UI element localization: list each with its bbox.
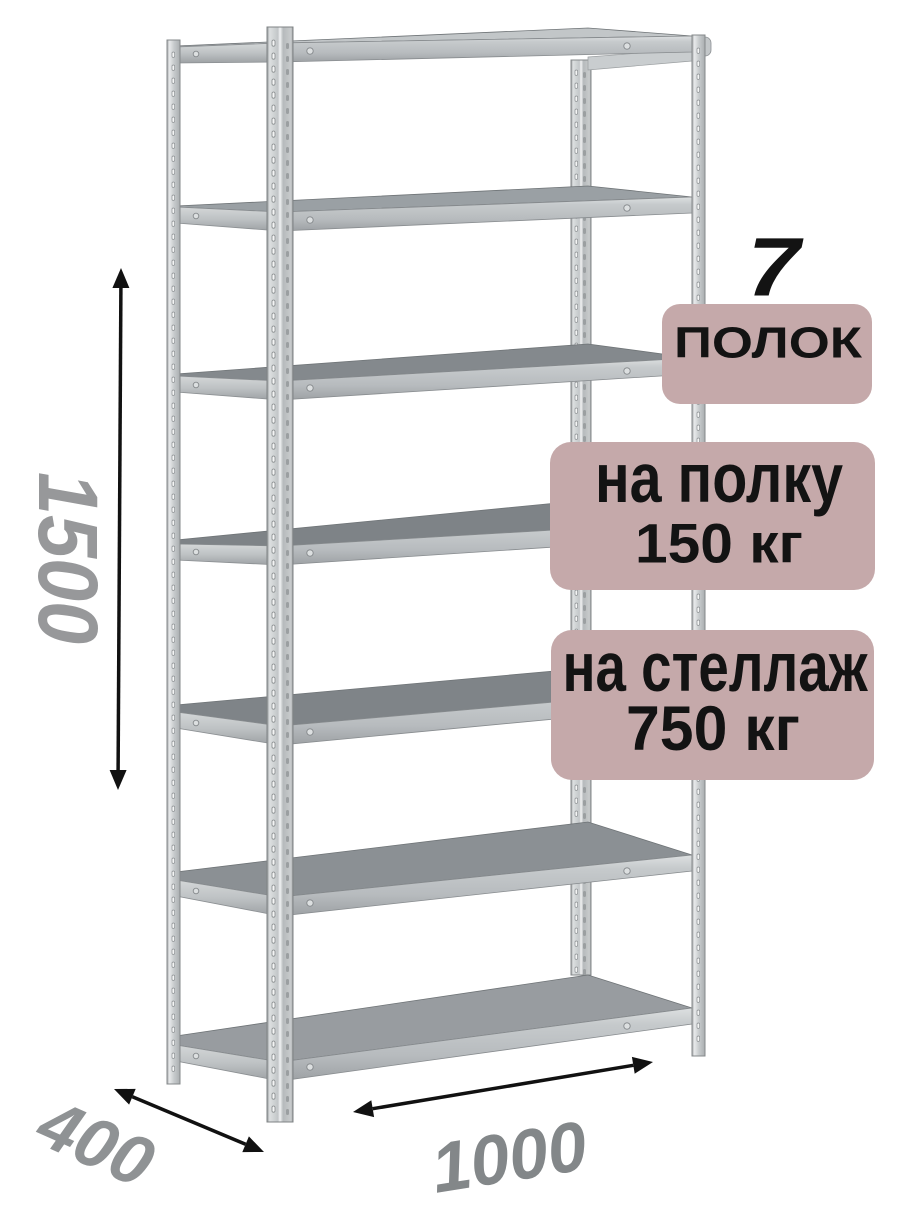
svg-text:1500: 1500: [21, 472, 115, 644]
svg-text:150 кг: 150 кг: [635, 512, 803, 575]
svg-text:на полку: на полку: [595, 439, 843, 517]
svg-text:ПОЛОК: ПОЛОК: [674, 319, 862, 368]
svg-text:750 кг: 750 кг: [626, 694, 800, 764]
